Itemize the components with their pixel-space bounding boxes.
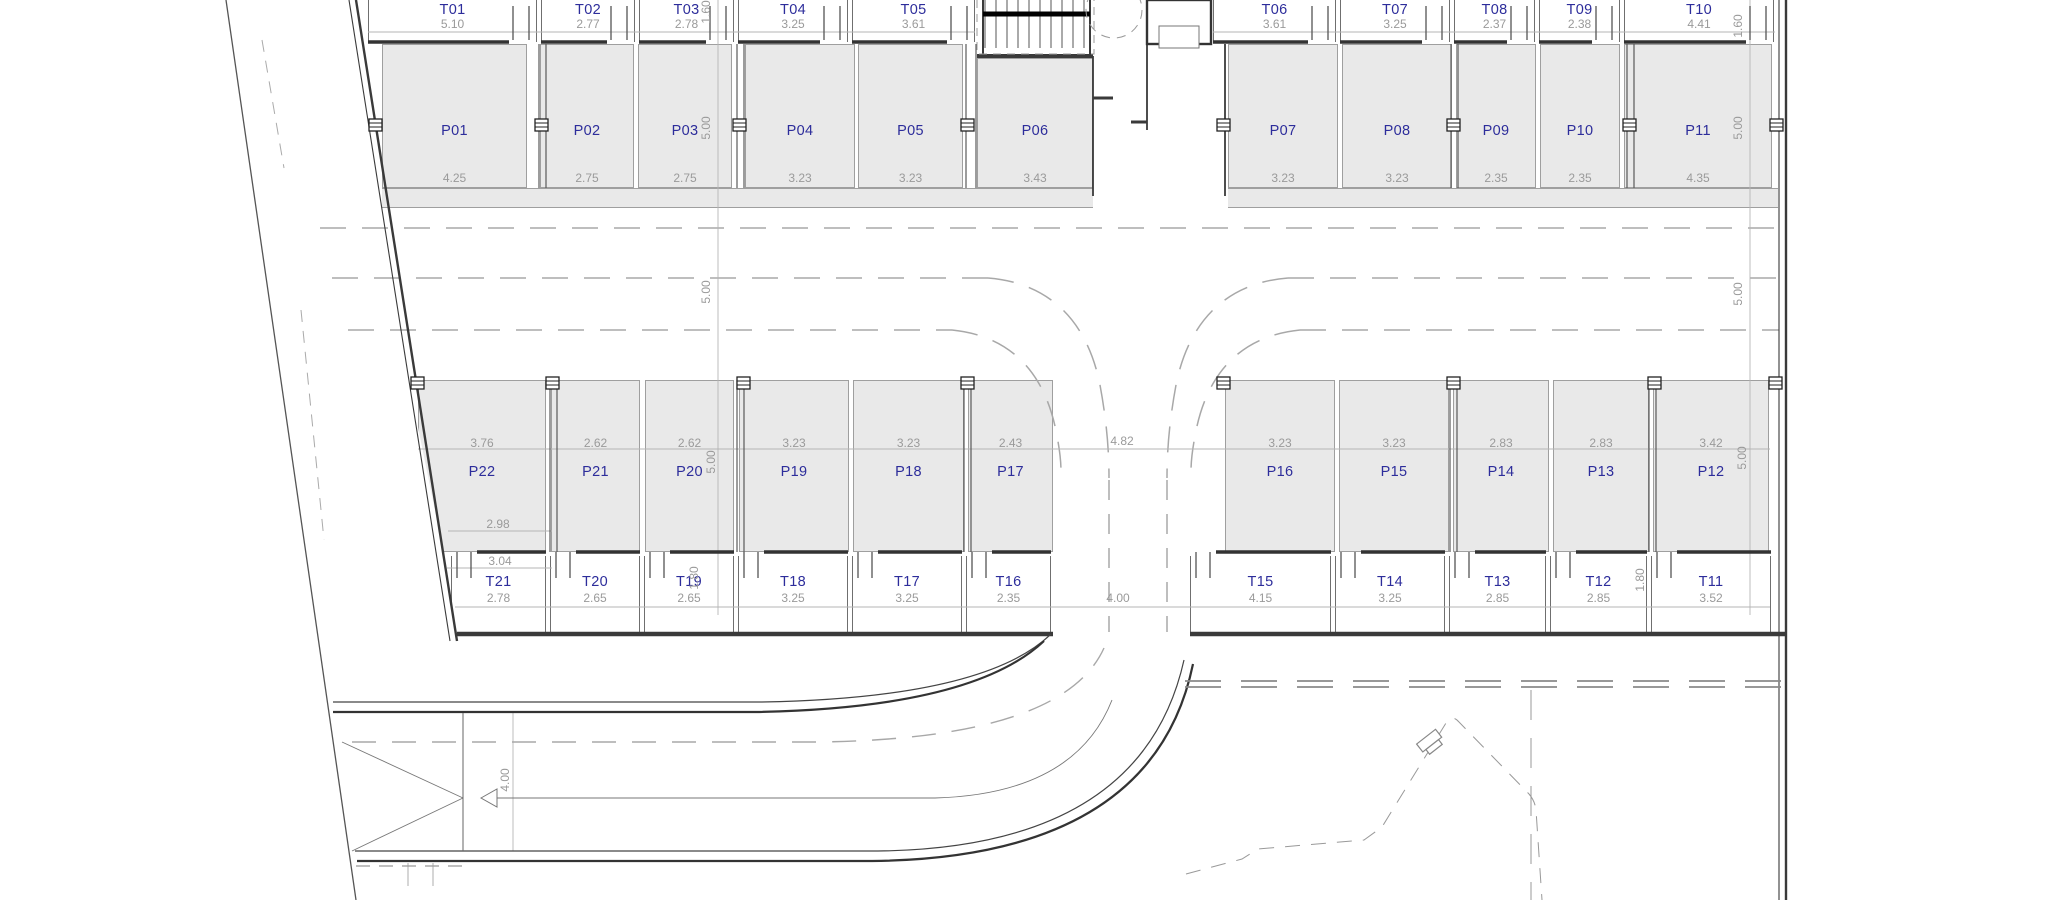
dimension-label: 4.82	[1110, 434, 1133, 448]
unit-dimension: 3.23	[899, 171, 922, 185]
unit-dimension: 2.62	[584, 436, 607, 450]
unit-label: P04	[787, 123, 814, 139]
dimension-label: 2.98	[486, 517, 509, 531]
storage-unit: T113.52	[1651, 556, 1771, 632]
unit-dimension: 3.25	[781, 17, 804, 31]
dimension-label: 5.00	[699, 280, 713, 303]
unit-dimension: 4.41	[1687, 17, 1710, 31]
unit-label: P19	[781, 464, 808, 480]
unit-dimension: 2.85	[1587, 591, 1610, 605]
unit-dimension: 2.35	[1568, 171, 1591, 185]
unit-label: P20	[676, 464, 703, 480]
unit-label: T18	[780, 574, 806, 590]
parking-space: P014.25	[382, 44, 527, 188]
unit-label: T17	[894, 574, 920, 590]
unit-label: P22	[469, 464, 496, 480]
parking-space: P102.35	[1540, 44, 1620, 188]
unit-dimension: 3.23	[788, 171, 811, 185]
stair-outline-dashed	[977, 0, 1094, 54]
unit-label: P02	[574, 123, 601, 139]
unit-label: T14	[1377, 574, 1403, 590]
unit-dimension: 4.15	[1249, 591, 1272, 605]
unit-label: T12	[1586, 574, 1612, 590]
storage-unit: T032.78	[639, 0, 734, 42]
storage-unit: T022.77	[541, 0, 635, 42]
parking-space: P073.23	[1228, 44, 1338, 188]
dimension-label: 1.80	[1633, 568, 1647, 591]
dimension-label: 1.80	[687, 566, 701, 589]
parking-space: P193.23	[739, 380, 849, 552]
parking-space: P202.62	[645, 380, 734, 552]
unit-dimension: 4.35	[1686, 171, 1709, 185]
storage-unit: T162.35	[966, 556, 1051, 632]
unit-dimension: 3.25	[781, 591, 804, 605]
property-line-dashes	[262, 40, 324, 540]
unit-label: P10	[1567, 123, 1594, 139]
storage-unit: T063.61	[1213, 0, 1336, 42]
dimension-label: 5.00	[1735, 446, 1749, 469]
unit-label: T05	[901, 2, 927, 18]
unit-dimension: 3.23	[1268, 436, 1291, 450]
unit-dimension: 2.37	[1483, 17, 1506, 31]
unit-dimension: 5.10	[441, 17, 464, 31]
elevator-shaft	[1147, 0, 1211, 44]
unit-dimension: 2.65	[677, 591, 700, 605]
unit-dimension: 2.85	[1486, 591, 1509, 605]
unit-label: P21	[582, 464, 609, 480]
unit-label: P18	[895, 464, 922, 480]
unit-label: P07	[1270, 123, 1297, 139]
parking-space: P083.23	[1342, 44, 1452, 188]
unit-label: P03	[672, 123, 699, 139]
parking-space: P092.35	[1456, 44, 1536, 188]
dimension-label: 3.04	[488, 554, 511, 568]
unit-dimension: 3.61	[1263, 17, 1286, 31]
stair-treads	[985, 0, 1084, 48]
unit-label: T11	[1699, 574, 1724, 590]
unit-dimension: 2.78	[675, 17, 698, 31]
parking-space: P183.23	[853, 380, 964, 552]
unit-label: P17	[997, 464, 1024, 480]
unit-dimension: 3.23	[1385, 171, 1408, 185]
unit-dimension: 2.35	[997, 591, 1020, 605]
unit-dimension: 2.38	[1568, 17, 1591, 31]
dimension-label: 5.00	[1731, 282, 1745, 305]
parking-space: P053.23	[858, 44, 963, 188]
unit-dimension: 4.25	[443, 171, 466, 185]
unit-dimension: 3.23	[897, 436, 920, 450]
dimension-label: 5.00	[1731, 116, 1745, 139]
parking-space: P032.75	[638, 44, 732, 188]
storage-unit: T132.85	[1449, 556, 1546, 632]
site-boundaries	[1185, 681, 1783, 900]
parking-space: P114.35	[1624, 44, 1772, 188]
dimension-label: 5.00	[699, 116, 713, 139]
unit-label: T10	[1686, 2, 1712, 18]
unit-dimension: 3.52	[1699, 591, 1722, 605]
unit-dimension: 2.35	[1484, 171, 1507, 185]
unit-label: T04	[780, 2, 806, 18]
parking-space: P223.76	[418, 380, 546, 552]
storage-unit: T043.25	[738, 0, 848, 42]
storage-unit: T143.25	[1335, 556, 1445, 632]
unit-label: T07	[1382, 2, 1408, 18]
unit-dimension: 2.75	[575, 171, 598, 185]
unit-label: T16	[996, 574, 1022, 590]
unit-label: P14	[1488, 464, 1515, 480]
parking-space: P063.43	[977, 58, 1093, 188]
floor-plan-canvas: T015.10T022.77T032.78T043.25T053.61T063.…	[0, 0, 2048, 900]
parking-space: P132.83	[1553, 380, 1649, 552]
unit-label: P12	[1698, 464, 1725, 480]
storage-unit: T173.25	[852, 556, 962, 632]
unit-dimension: 3.61	[902, 17, 925, 31]
dimension-label: 4.00	[498, 768, 512, 791]
walkway-strip-right	[1228, 188, 1778, 208]
storage-unit: T183.25	[738, 556, 848, 632]
unit-label: P08	[1384, 123, 1411, 139]
property-line	[226, 0, 356, 900]
storage-unit: T154.15	[1190, 556, 1331, 632]
parking-space: P043.23	[745, 44, 855, 188]
storage-unit: T104.41	[1624, 0, 1774, 42]
storage-unit: T202.65	[550, 556, 640, 632]
unit-label: P09	[1483, 123, 1510, 139]
site-furniture-icon	[1417, 729, 1446, 756]
unit-label: T21	[486, 574, 512, 590]
unit-dimension: 3.23	[782, 436, 805, 450]
unit-dimension: 3.25	[1383, 17, 1406, 31]
unit-label: T01	[440, 2, 466, 18]
unit-dimension: 3.42	[1699, 436, 1722, 450]
unit-label: T03	[674, 2, 700, 18]
unit-label: T20	[582, 574, 608, 590]
dimension-label: 5.00	[704, 450, 718, 473]
unit-label: P16	[1267, 464, 1294, 480]
unit-dimension: 3.43	[1023, 171, 1046, 185]
unit-label: T08	[1482, 2, 1508, 18]
turning-circle-dashed	[1086, 0, 1142, 38]
unit-dimension: 3.25	[895, 591, 918, 605]
storage-unit: T092.38	[1539, 0, 1620, 42]
storage-unit: T053.61	[852, 0, 975, 42]
unit-label: T15	[1248, 574, 1274, 590]
parking-space: P022.75	[540, 44, 634, 188]
parking-space: P153.23	[1339, 380, 1449, 552]
unit-dimension: 2.75	[673, 171, 696, 185]
unit-label: P15	[1381, 464, 1408, 480]
unit-dimension: 2.78	[487, 591, 510, 605]
unit-dimension: 2.62	[678, 436, 701, 450]
dimension-label: 1.60	[699, 0, 713, 23]
walkway-strip-left	[382, 188, 1093, 208]
access-road	[333, 634, 1193, 886]
unit-label: P11	[1685, 123, 1711, 139]
storage-unit: T015.10	[368, 0, 537, 42]
unit-dimension: 3.23	[1271, 171, 1294, 185]
dimension-label: 4.00	[1106, 591, 1129, 605]
unit-dimension: 3.23	[1382, 436, 1405, 450]
storage-unit: T082.37	[1454, 0, 1535, 42]
unit-dimension: 2.65	[583, 591, 606, 605]
unit-label: T13	[1485, 574, 1511, 590]
unit-label: P01	[441, 123, 468, 139]
unit-dimension: 2.77	[576, 17, 599, 31]
unit-label: P06	[1022, 123, 1049, 139]
parking-space: P212.62	[551, 380, 640, 552]
storage-unit: T073.25	[1340, 0, 1450, 42]
parking-space: P163.23	[1225, 380, 1335, 552]
dimension-label: 1.60	[1731, 14, 1745, 37]
unit-label: P05	[897, 123, 924, 139]
parking-space: P142.83	[1453, 380, 1549, 552]
parking-space: P172.43	[968, 380, 1053, 552]
unit-dimension: 3.76	[470, 436, 493, 450]
unit-dimension: 2.83	[1589, 436, 1612, 450]
unit-label: P13	[1588, 464, 1615, 480]
unit-label: T02	[575, 2, 601, 18]
unit-dimension: 2.83	[1489, 436, 1512, 450]
unit-dimension: 3.25	[1378, 591, 1401, 605]
unit-dimension: 2.43	[999, 436, 1022, 450]
unit-label: T09	[1567, 2, 1593, 18]
elevator-car	[1159, 26, 1199, 48]
unit-label: T06	[1262, 2, 1288, 18]
parking-space: P123.42	[1653, 380, 1769, 552]
